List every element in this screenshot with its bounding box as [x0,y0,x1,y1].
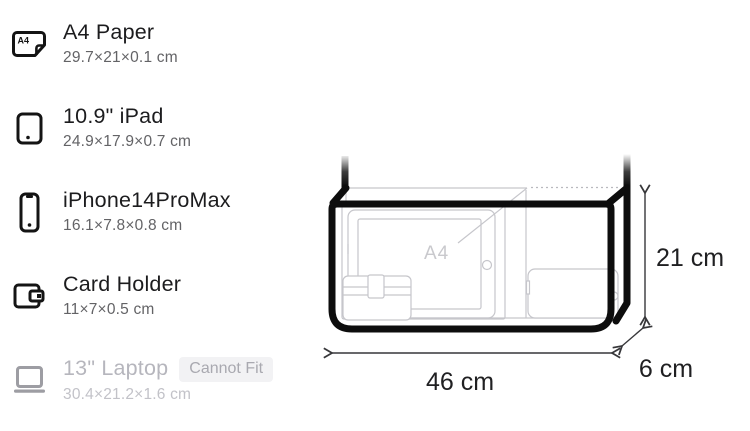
bag-contents: A4 [342,188,618,320]
wallet-icon [10,283,48,309]
a4-paper-icon: A4 [10,30,48,58]
bag-a4-label: A4 [424,243,449,264]
depth-arrow [622,328,643,346]
laptop-icon [10,366,48,394]
item-title: A4 Paper [63,21,154,45]
list-item-card-holder[interactable]: Card Holder 11×7×0.5 cm [10,254,300,338]
card-holder-outline [343,275,411,320]
item-dimensions: 16.1×7.8×0.8 cm [63,217,231,235]
item-dimensions: 11×7×0.5 cm [63,301,181,319]
height-label: 21 cm [656,244,724,272]
item-size-list: A4 A4 Paper 29.7×21×0.1 cm 10.9" iPad 24… [10,2,300,422]
depth-label: 6 cm [639,355,693,383]
item-dimensions: 30.4×21.2×1.6 cm [63,386,273,404]
list-item-iphone[interactable]: iPhone14ProMax 16.1×7.8×0.8 cm [10,170,300,254]
bag-dimension-diagram: A4 46 cm 21 cm 6 [300,140,750,426]
cannot-fit-badge: Cannot Fit [179,357,273,382]
ipad-icon [10,112,48,145]
svg-text:A4: A4 [18,36,30,46]
item-title: Card Holder [63,273,181,297]
list-item-laptop[interactable]: 13" Laptop Cannot Fit 30.4×21.2×1.6 cm [10,338,300,422]
item-dimensions: 29.7×21×0.1 cm [63,49,178,67]
item-title: 13" Laptop [63,357,168,381]
item-title: 10.9" iPad [63,105,163,129]
width-label: 46 cm [426,368,494,396]
list-item-ipad[interactable]: 10.9" iPad 24.9×17.9×0.7 cm [10,86,300,170]
item-dimensions: 24.9×17.9×0.7 cm [63,133,191,151]
item-title: iPhone14ProMax [63,189,231,213]
iphone-icon [10,192,48,233]
iphone-outline [527,269,619,318]
bag-straps [345,154,627,190]
list-item-a4-paper[interactable]: A4 A4 Paper 29.7×21×0.1 cm [10,2,300,86]
